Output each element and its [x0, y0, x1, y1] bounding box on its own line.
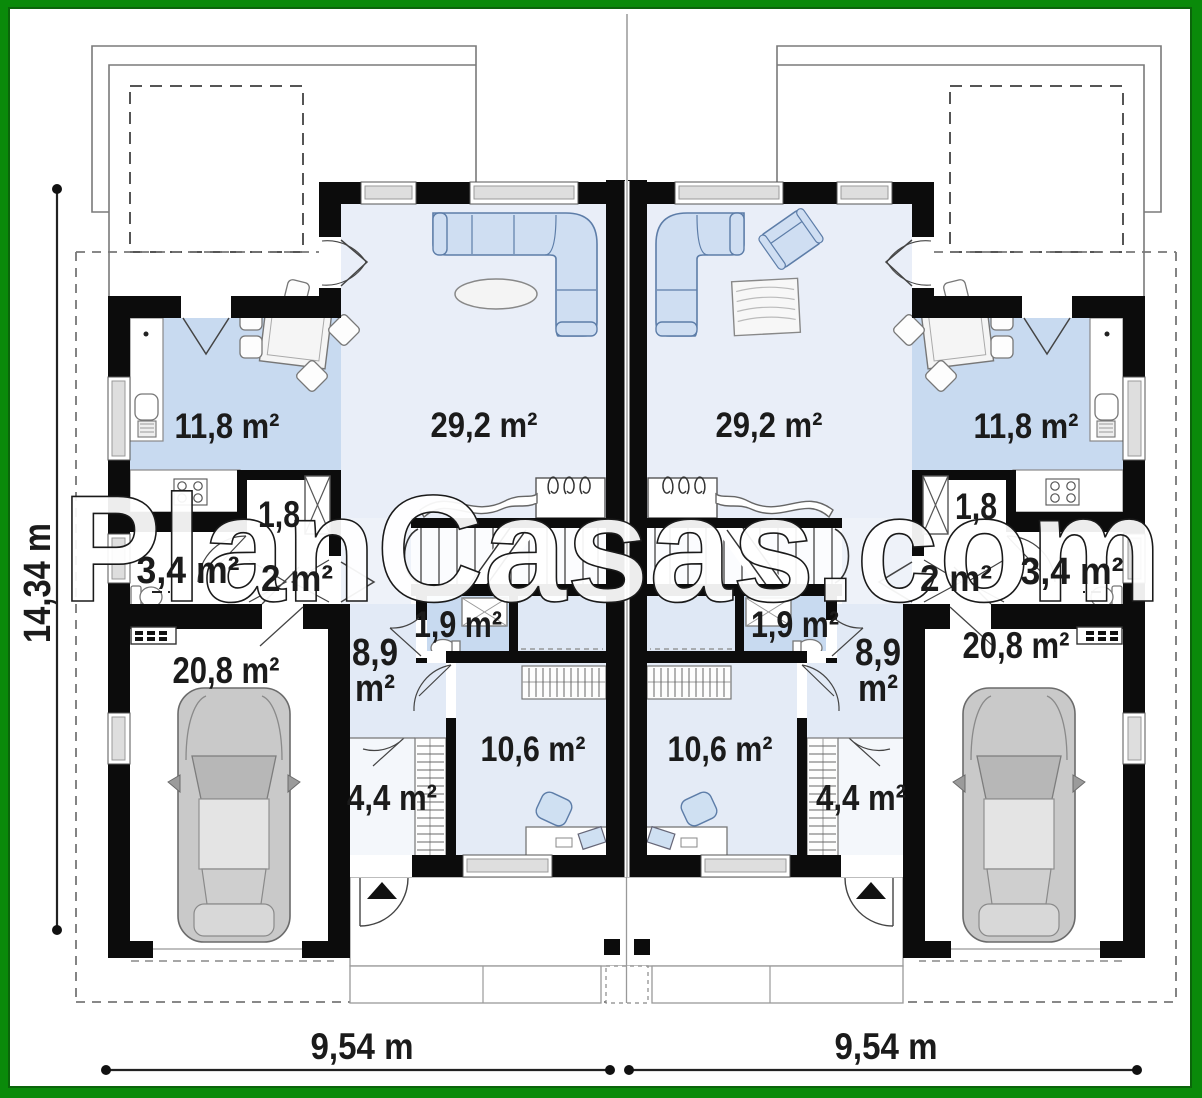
svg-text:10,6 m²: 10,6 m²	[481, 730, 586, 769]
svg-text:29,2 m²: 29,2 m²	[716, 406, 823, 445]
svg-text:3,4 m²: 3,4 m²	[137, 550, 240, 592]
svg-text:1,8: 1,8	[258, 494, 300, 535]
svg-text:10,6 m²: 10,6 m²	[668, 730, 773, 769]
svg-text:4,4 m²: 4,4 m²	[347, 777, 437, 818]
svg-text:14,34 m: 14,34 m	[17, 523, 59, 643]
svg-text:1,9 m²: 1,9 m²	[414, 604, 502, 645]
svg-text:9,54 m: 9,54 m	[311, 1026, 414, 1067]
svg-text:2 m²: 2 m²	[920, 558, 992, 599]
svg-text:m²: m²	[858, 668, 898, 710]
svg-text:1,8: 1,8	[955, 486, 997, 527]
svg-text:4,4 m²: 4,4 m²	[816, 777, 906, 818]
svg-text:3,4 m²: 3,4 m²	[1021, 551, 1124, 593]
svg-text:11,8 m²: 11,8 m²	[974, 407, 1079, 446]
svg-text:11,8 m²: 11,8 m²	[175, 407, 280, 446]
svg-text:m²: m²	[355, 668, 395, 710]
svg-text:20,8 m²: 20,8 m²	[173, 650, 280, 691]
svg-text:PlanCasas.com: PlanCasas.com	[62, 464, 1162, 634]
svg-text:20,8 m²: 20,8 m²	[963, 625, 1070, 666]
svg-text:29,2 m²: 29,2 m²	[431, 406, 538, 445]
svg-text:2 m²: 2 m²	[261, 558, 333, 599]
svg-text:1,9 m²: 1,9 m²	[751, 604, 839, 645]
svg-text:9,54 m: 9,54 m	[835, 1026, 938, 1067]
